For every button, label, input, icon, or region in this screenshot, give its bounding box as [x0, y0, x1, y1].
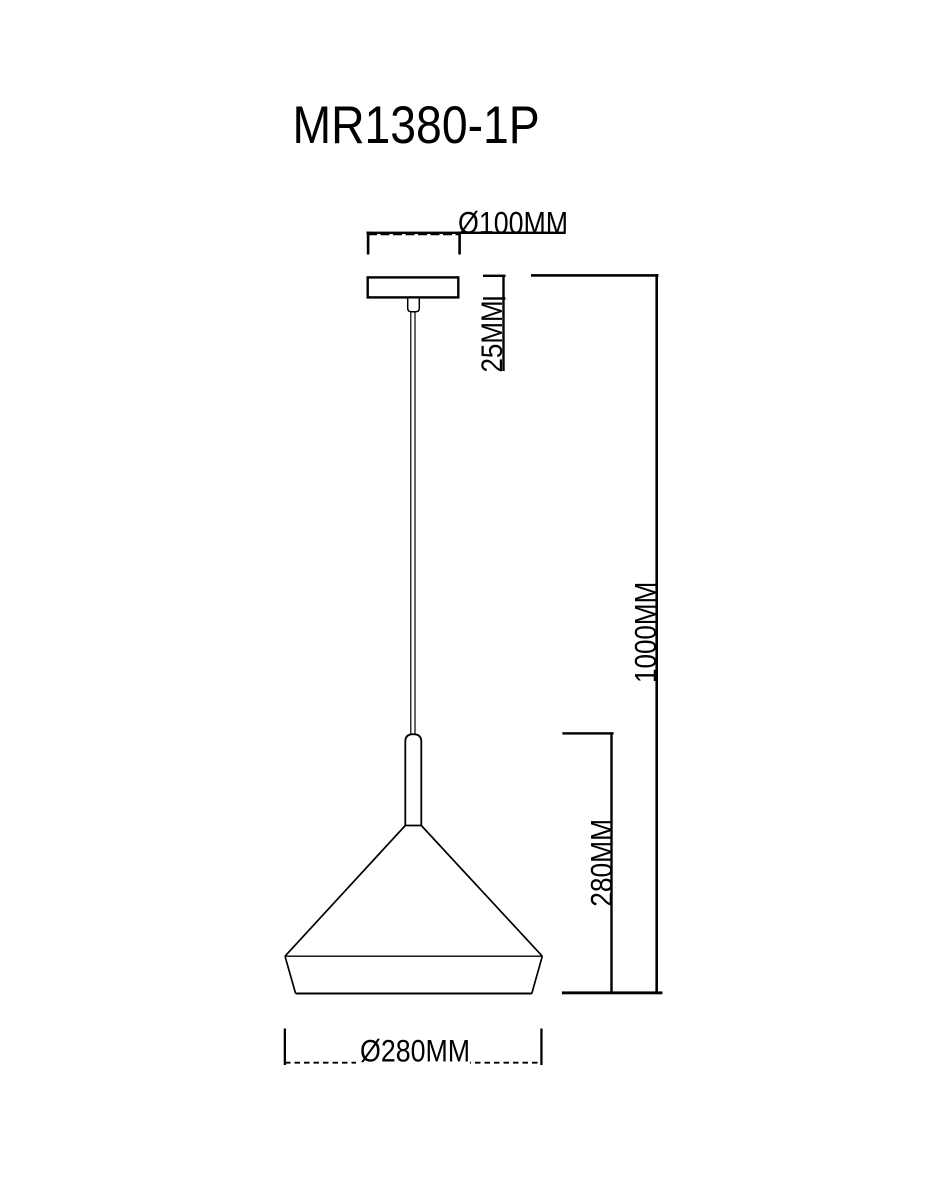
svg-text:Ø100MM: Ø100MM: [458, 207, 568, 241]
svg-text:MR1380-1P: MR1380-1P: [293, 95, 540, 154]
svg-text:280MM: 280MM: [585, 819, 619, 907]
svg-text:Ø280MM: Ø280MM: [360, 1035, 470, 1069]
svg-text:25MM: 25MM: [475, 300, 508, 372]
svg-text:1000MM: 1000MM: [629, 582, 664, 683]
